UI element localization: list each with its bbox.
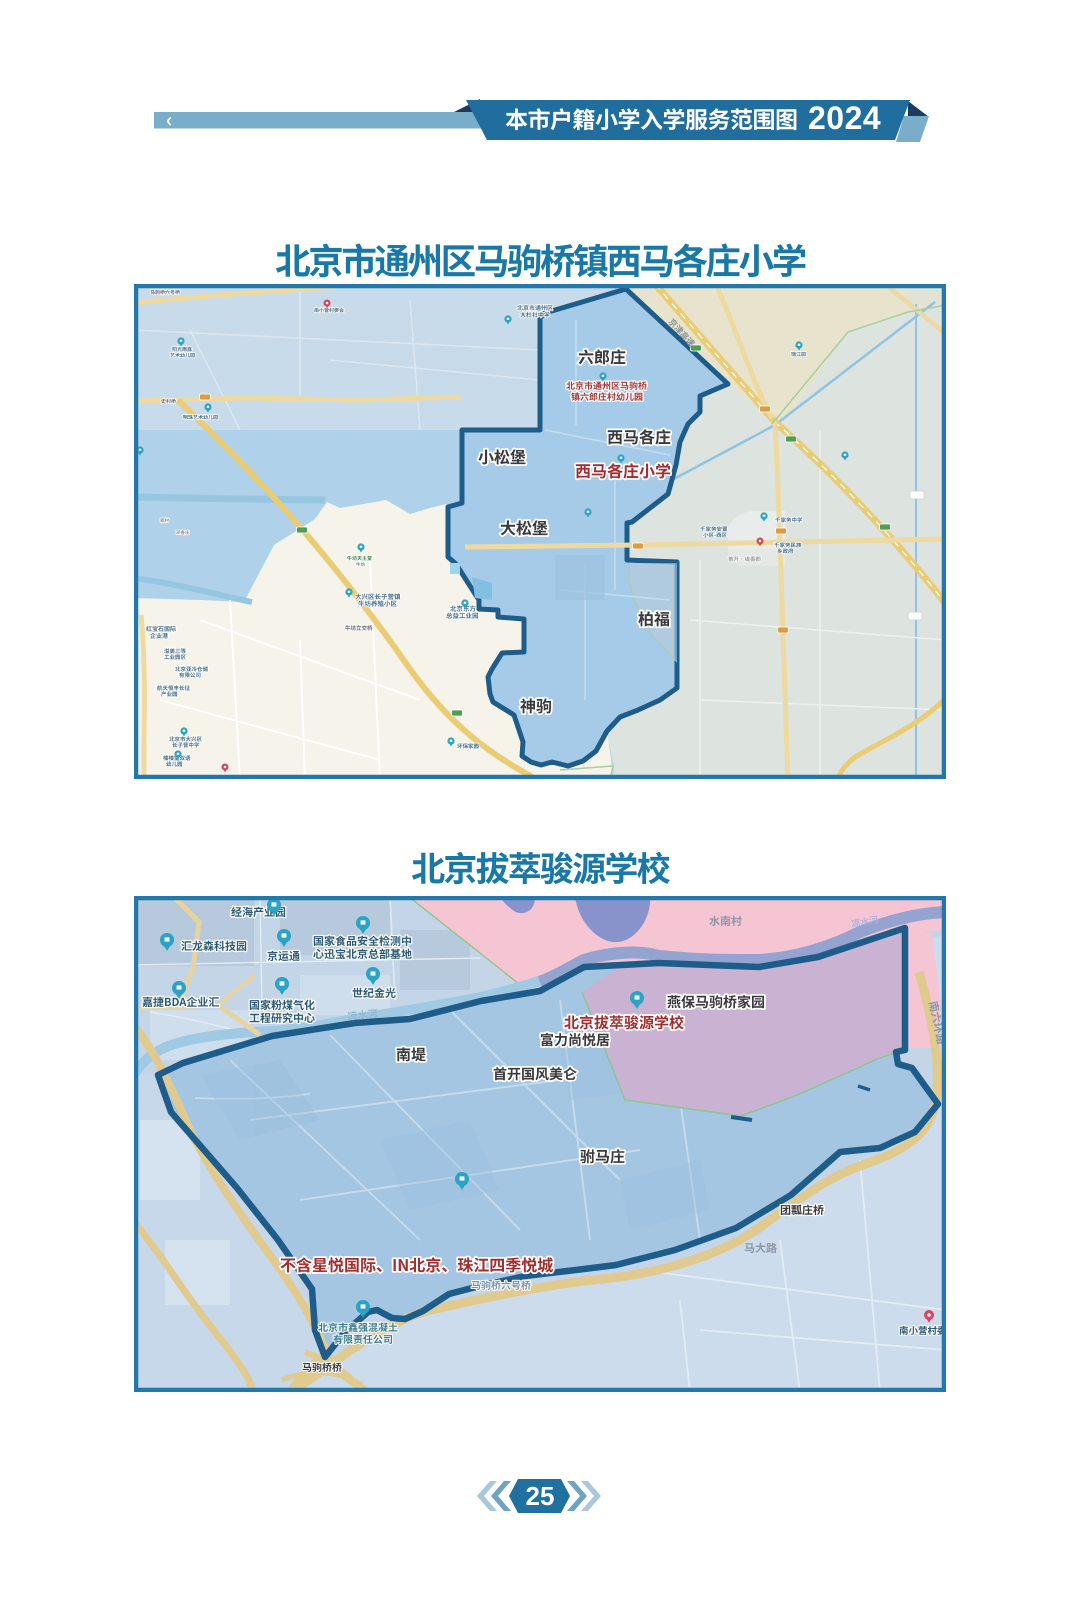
svg-text:25: 25: [526, 1481, 555, 1511]
svg-text:2024: 2024: [808, 100, 881, 136]
